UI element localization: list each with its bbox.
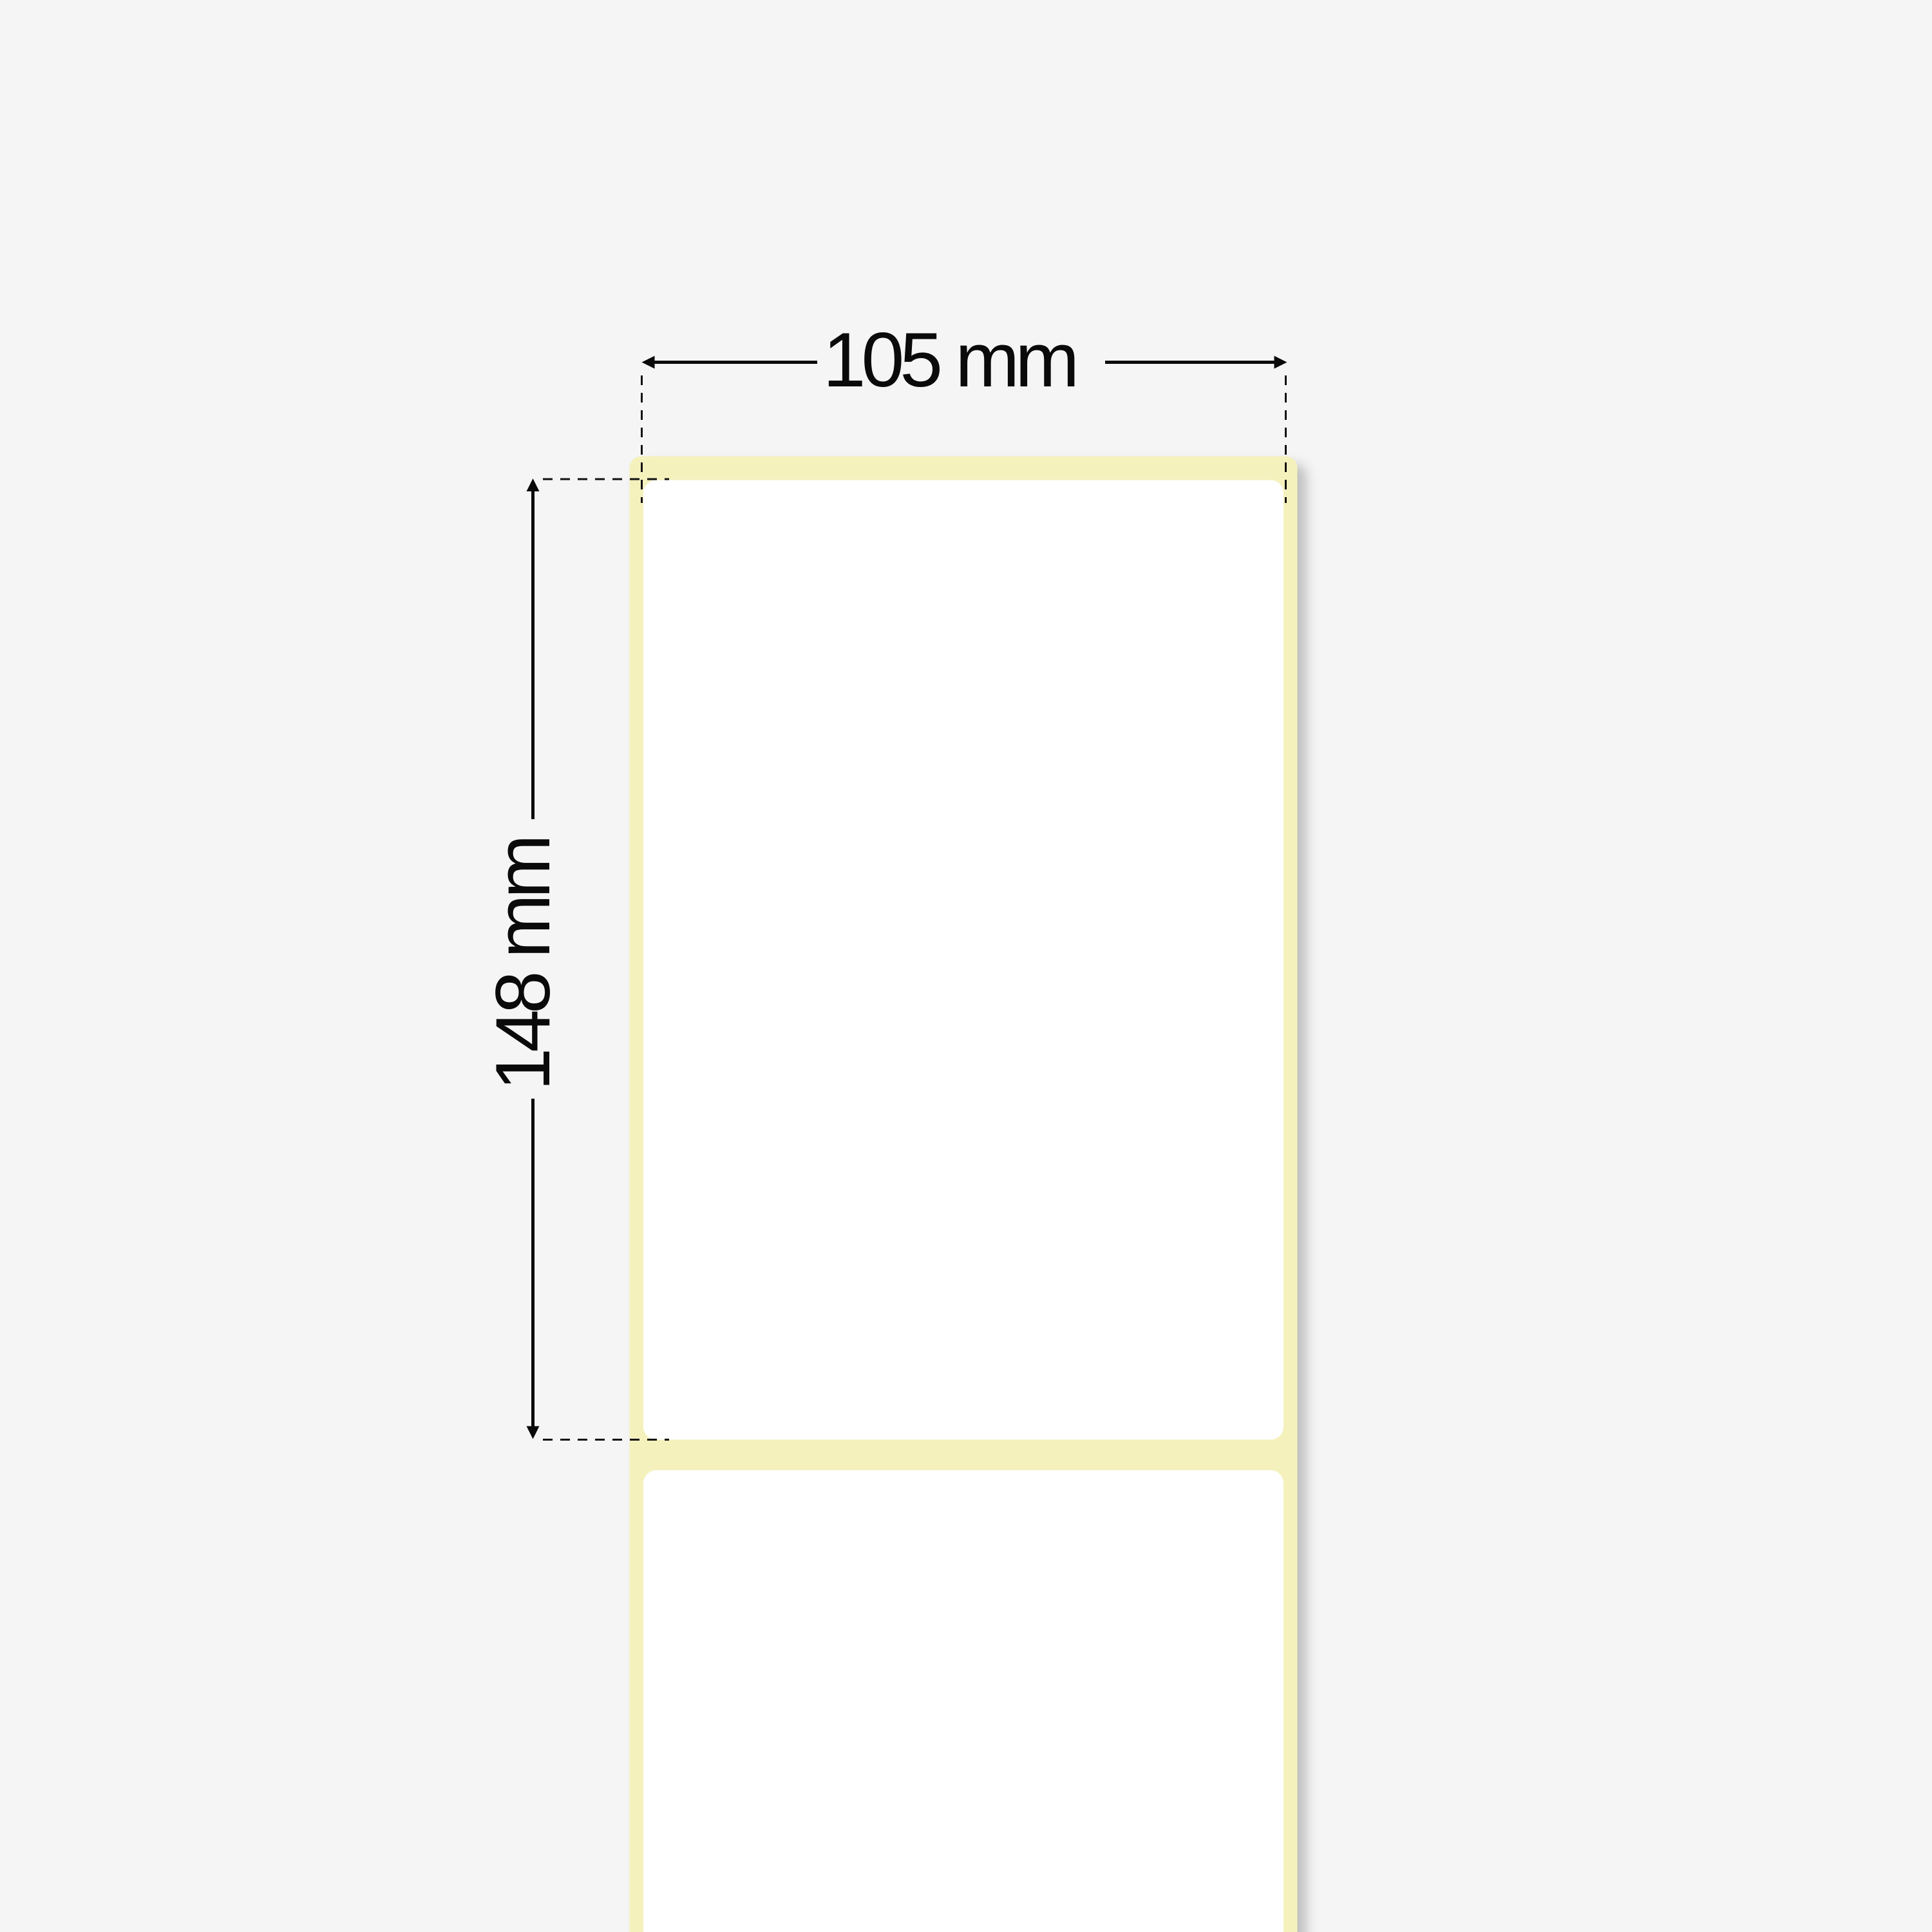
svg-text:148 mm: 148 mm (480, 838, 566, 1091)
svg-text:105 mm: 105 mm (823, 317, 1075, 403)
